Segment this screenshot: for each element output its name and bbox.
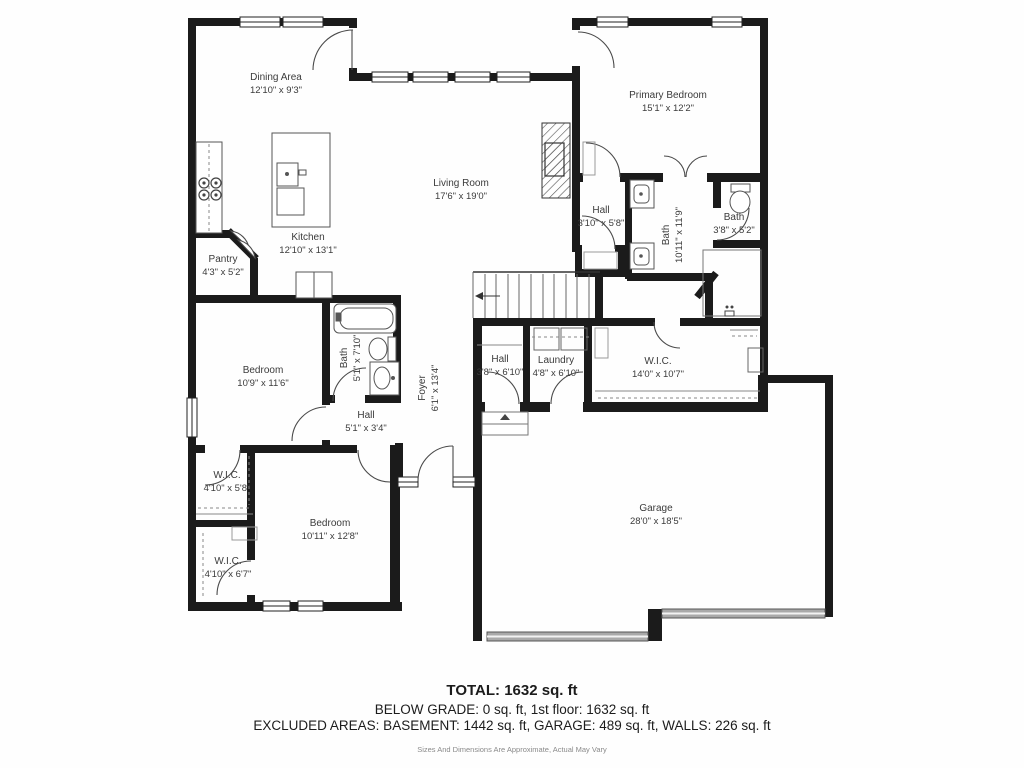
washer	[534, 328, 559, 350]
area-summary: TOTAL: 1632 sq. ft BELOW GRADE: 0 sq. ft…	[0, 682, 1024, 754]
toilet-bath-small	[730, 184, 750, 213]
room-label-wic-1: W.I.C. 4'10" x 5'8"	[204, 470, 251, 494]
room-label-wic-main: W.I.C. 14'0" x 10'7"	[632, 356, 684, 380]
room-label-living-room: Living Room 17'6" x 19'0"	[433, 178, 489, 202]
room-label-hall-c: Hall 3'8" x 6'10"	[477, 354, 524, 378]
disclaimer-text: Sizes And Dimensions Are Approximate, Ac…	[0, 745, 1024, 754]
vanity-primary-2	[630, 243, 654, 269]
shower-head-icon	[725, 306, 734, 316]
floor-plan-canvas	[0, 0, 1024, 768]
kitchen-counter	[196, 142, 222, 233]
room-label-kitchen: Kitchen 12'10" x 13'1"	[279, 232, 336, 256]
room-label-garage: Garage 28'0" x 18'5"	[630, 503, 682, 527]
room-label-bedroom-b: Bedroom 10'11" x 12'8"	[302, 518, 359, 542]
room-label-bedroom-a: Bedroom 10'9" x 11'6"	[237, 365, 288, 389]
room-label-wic-2: W.I.C. 4'10" x 6'7"	[205, 556, 252, 580]
room-label-bath-b: Bath 5'1" x 7'10"	[339, 335, 363, 382]
bathtub	[334, 304, 396, 333]
room-label-laundry: Laundry 4'8" x 6'10"	[533, 355, 580, 379]
floor-plan-page: Dining Area 12'10" x 9'3" Primary Bedroo…	[0, 0, 1024, 768]
below-grade-text: BELOW GRADE: 0 sq. ft, 1st floor: 1632 s…	[0, 702, 1024, 717]
vanity-primary-1	[630, 180, 654, 208]
room-label-pantry: Pantry 4'3" x 5'2"	[202, 254, 244, 278]
room-label-hall-a: Hall 3'10" x 5'8"	[578, 205, 625, 229]
kitchen-island	[272, 133, 330, 227]
room-label-hall-b: Hall 5'1" x 3'4"	[345, 410, 387, 434]
dryer	[561, 328, 587, 350]
stairs-direction-arrow-icon	[475, 292, 483, 300]
toilet-bath-b	[369, 337, 396, 361]
room-label-dining: Dining Area 12'10" x 9'3"	[250, 72, 302, 96]
refrigerator	[296, 272, 332, 298]
total-area-text: TOTAL: 1632 sq. ft	[0, 682, 1024, 699]
room-label-primary-bedroom: Primary Bedroom 15'1" x 12'2"	[629, 90, 707, 114]
room-label-foyer: Foyer 6'1" x 13'4"	[417, 365, 441, 412]
fireplace	[542, 123, 570, 198]
room-label-bath-small: Bath 3'8" x 5'2"	[713, 212, 755, 236]
entry-closet	[482, 412, 528, 435]
excluded-areas-text: EXCLUDED AREAS: BASEMENT: 1442 sq. ft, G…	[0, 718, 1024, 733]
stairs	[473, 272, 600, 318]
vanity-bath-b	[370, 362, 399, 395]
room-label-bath-primary: Bath 10'11" x 11'9"	[661, 207, 685, 263]
